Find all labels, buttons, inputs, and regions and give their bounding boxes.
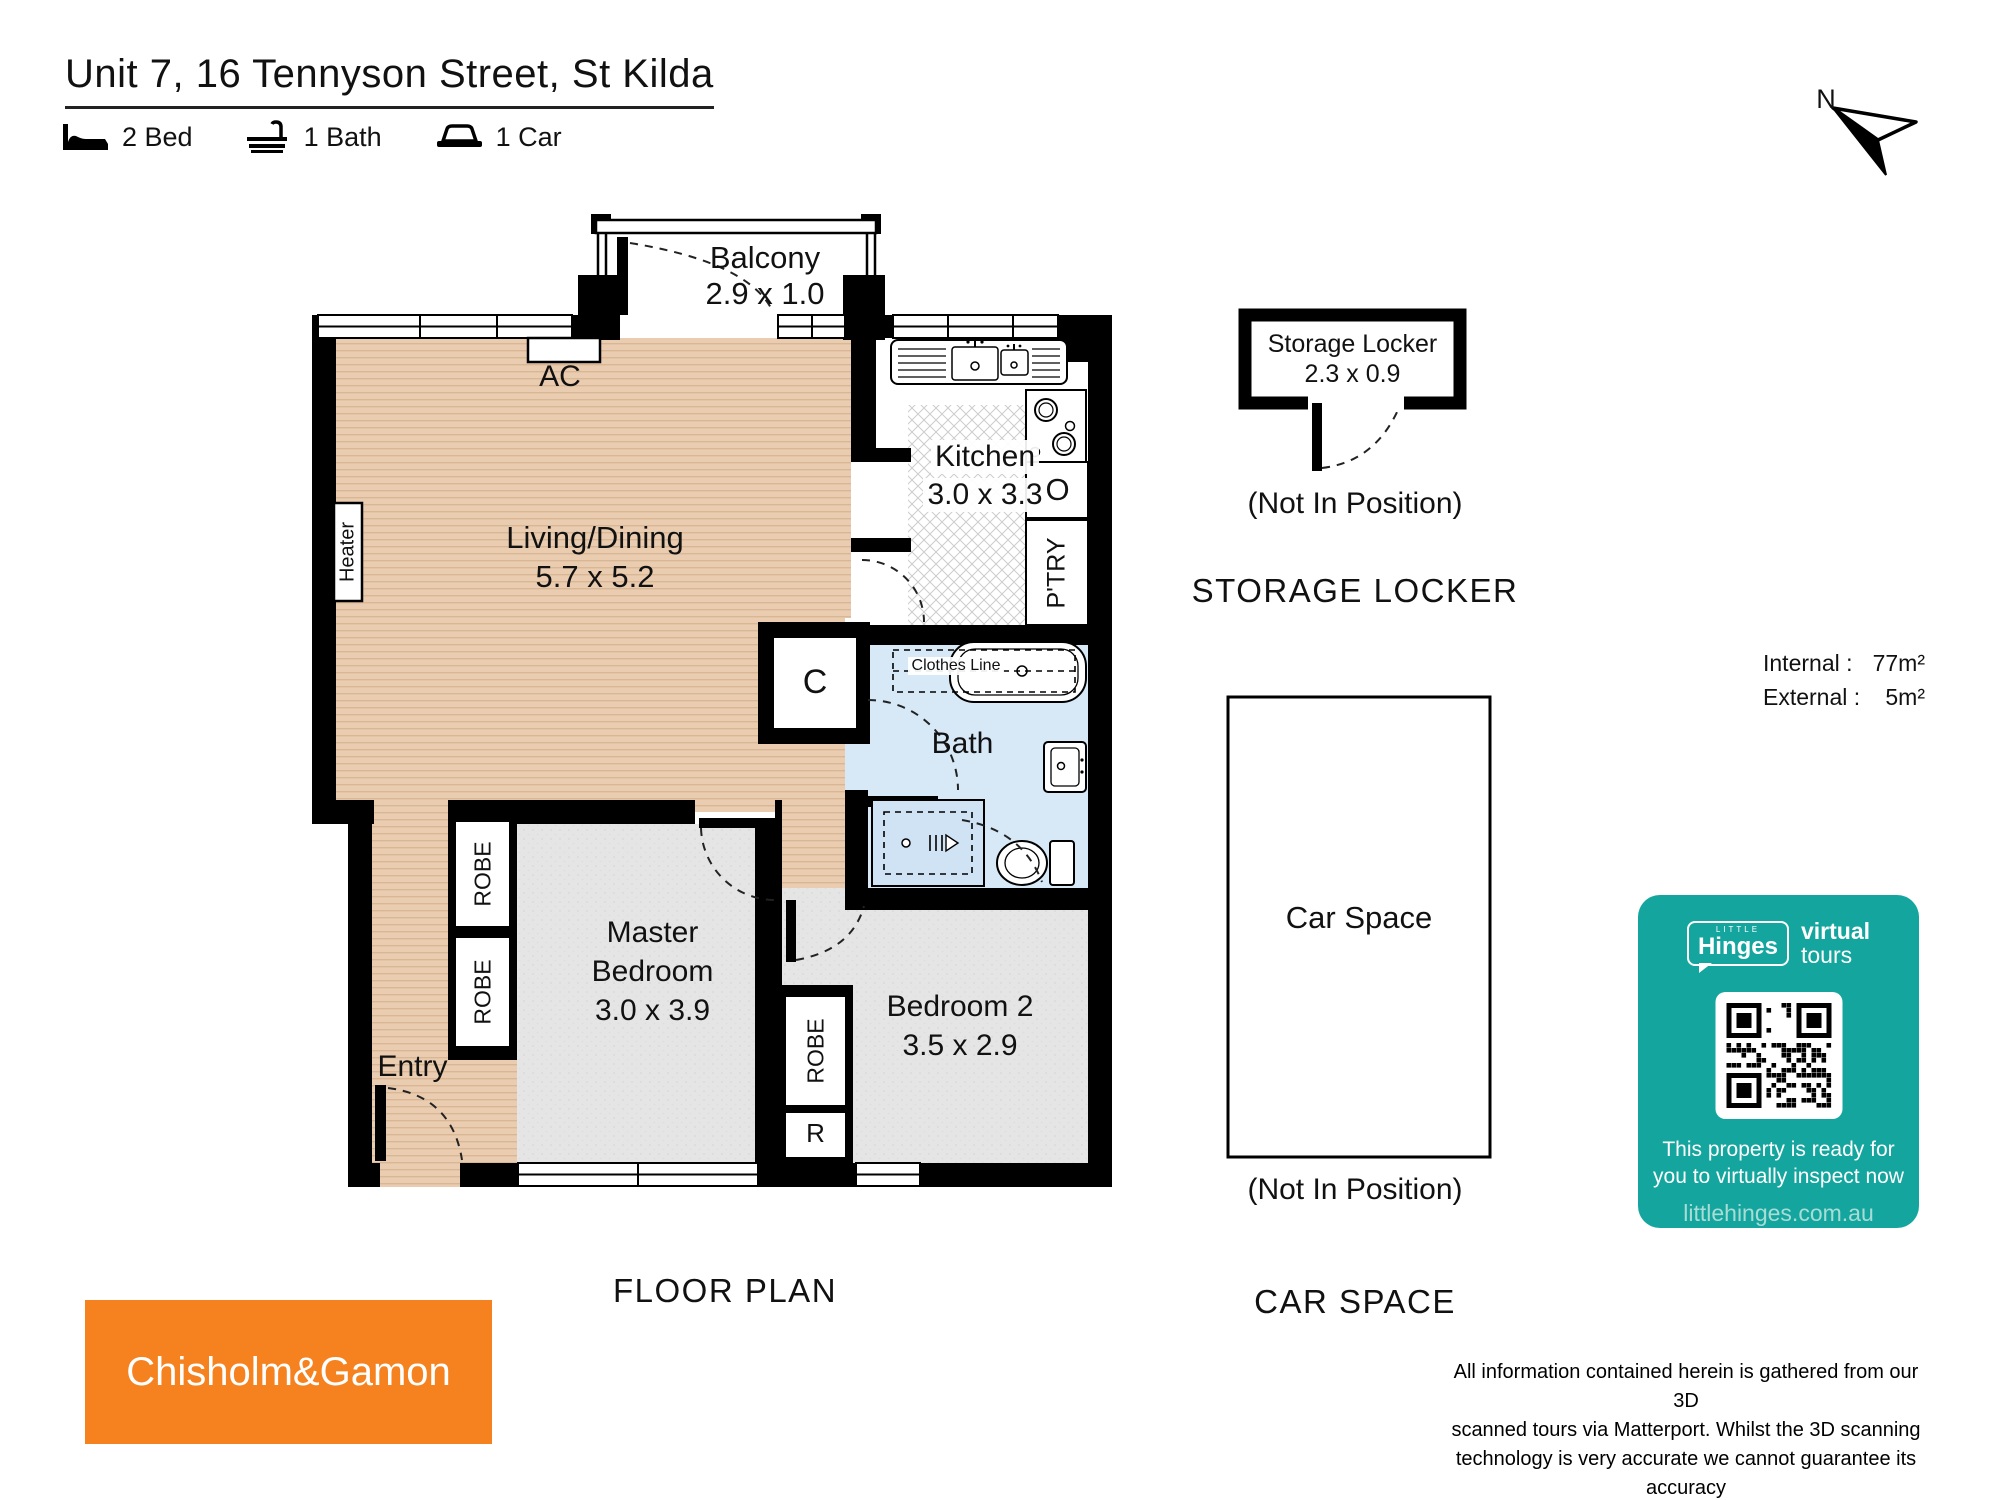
- bed-icon: [62, 121, 109, 153]
- internal-area-row: Internal : 77m²: [1763, 650, 1925, 677]
- feature-baths: 1 Bath: [247, 120, 382, 154]
- qr-code: [1715, 992, 1842, 1119]
- external-area-value: 5m²: [1885, 684, 1925, 711]
- kitchen-label-text: Kitchen: [931, 440, 1039, 474]
- living-dims: 5.7 x 5.2: [420, 559, 770, 595]
- external-area-label: External :: [1763, 684, 1860, 711]
- robe-label-1: ROBE: [470, 841, 497, 906]
- agency-logo: Chisholm&Gamon: [85, 1300, 492, 1444]
- internal-area-label: Internal :: [1763, 650, 1853, 677]
- floor-plan-heading: FLOOR PLAN: [530, 1272, 920, 1310]
- bedroom2-dims: 3.5 x 2.9: [850, 1029, 1070, 1063]
- oven-label: O: [1030, 472, 1085, 508]
- disclaimer: All information contained herein is gath…: [1440, 1358, 1932, 1500]
- car-space-name: Car Space: [1228, 900, 1490, 936]
- ac-label: AC: [520, 360, 600, 394]
- floor-plan-page: Unit 7, 16 Tennyson Street, St Kilda 2 B…: [0, 0, 2000, 1500]
- agency-name: Chisholm&Gamon: [126, 1350, 451, 1395]
- hinges-speech-bubble-icon: LITTLE Hinges: [1687, 921, 1789, 966]
- toilet-icon: [997, 841, 1074, 885]
- disclaimer-line: All information contained herein is gath…: [1440, 1358, 1932, 1416]
- page-title: Unit 7, 16 Tennyson Street, St Kilda: [65, 52, 714, 109]
- internal-area-value: 77m²: [1873, 650, 1925, 677]
- virtual-tours-wordmark: virtual tours: [1801, 919, 1870, 967]
- storage-locker-heading: STORAGE LOCKER: [1160, 572, 1550, 610]
- storage-locker-name: Storage Locker: [1250, 330, 1455, 359]
- shower-icon: [872, 800, 984, 886]
- balcony-label: Balcony: [650, 240, 880, 276]
- feature-cars: 1 Car: [436, 122, 562, 153]
- master-dims: 3.0 x 3.9: [530, 994, 775, 1028]
- living-label: Living/Dining: [420, 520, 770, 556]
- clothes-line-label: Clothes Line: [896, 657, 1016, 675]
- feature-cars-label: 1 Car: [496, 122, 562, 153]
- master-label-2: Bedroom: [530, 955, 775, 989]
- tours-word: tours: [1801, 943, 1870, 967]
- little-hinges-logo: LITTLE Hinges virtual tours: [1638, 919, 1919, 967]
- robe-label-3: ROBE: [803, 1018, 830, 1083]
- vt-website: littlehinges.com.au: [1638, 1200, 1919, 1227]
- disclaimer-line: technology is very accurate we cannot gu…: [1440, 1445, 1932, 1500]
- north-arrow-icon: [1833, 108, 1916, 175]
- feature-beds: 2 Bed: [62, 121, 193, 153]
- virtual-tour-card: LITTLE Hinges virtual tours This propert…: [1638, 895, 1919, 1228]
- car-icon: [436, 122, 483, 152]
- storage-locker-note: (Not In Position): [1160, 487, 1550, 521]
- feature-beds-label: 2 Bed: [122, 122, 193, 153]
- closet-label: C: [780, 663, 850, 702]
- kitchen-dims-text: 3.0 x 3.3: [923, 478, 1046, 512]
- kitchen-label: Kitchen: [880, 440, 1090, 474]
- kitchen-sink-icon: [891, 340, 1067, 384]
- vt-message-line2: you to virtually inspect now: [1638, 1165, 1919, 1189]
- robe-label-2: ROBE: [470, 959, 497, 1024]
- bath-icon: [247, 120, 291, 154]
- bedroom2-label: Bedroom 2: [850, 990, 1070, 1024]
- bath-sink-icon: [1044, 742, 1086, 792]
- virtual-word: virtual: [1801, 919, 1870, 943]
- feature-baths-label: 1 Bath: [304, 122, 382, 153]
- clothes-line-text: Clothes Line: [908, 657, 1005, 675]
- bath-label: Bath: [900, 727, 1025, 761]
- area-summary: Internal : 77m² External : 5m²: [1763, 650, 1925, 718]
- brand-name: Hinges: [1698, 934, 1778, 959]
- car-space-note: (Not In Position): [1160, 1173, 1550, 1207]
- disclaimer-line: scanned tours via Matterport. Whilst the…: [1440, 1416, 1932, 1445]
- speech-bubble-tail: [1699, 963, 1712, 973]
- entry-label: Entry: [355, 1050, 470, 1084]
- pantry-label: P'TRY: [1043, 538, 1072, 609]
- ac-unit: [528, 338, 600, 362]
- heater-label: Heater: [337, 522, 360, 582]
- robe-short-label: R: [786, 1118, 845, 1149]
- storage-locker-dims: 2.3 x 0.9: [1250, 360, 1455, 389]
- compass-north-label: N: [1806, 84, 1846, 115]
- feature-row: 2 Bed 1 Bath 1 Car: [62, 120, 616, 154]
- car-space-heading: CAR SPACE: [1160, 1283, 1550, 1321]
- balcony-dims: 2.9 x 1.0: [650, 276, 880, 312]
- master-label-1: Master: [530, 916, 775, 950]
- vt-message-line1: This property is ready for: [1638, 1138, 1919, 1162]
- external-area-row: External : 5m²: [1763, 684, 1925, 711]
